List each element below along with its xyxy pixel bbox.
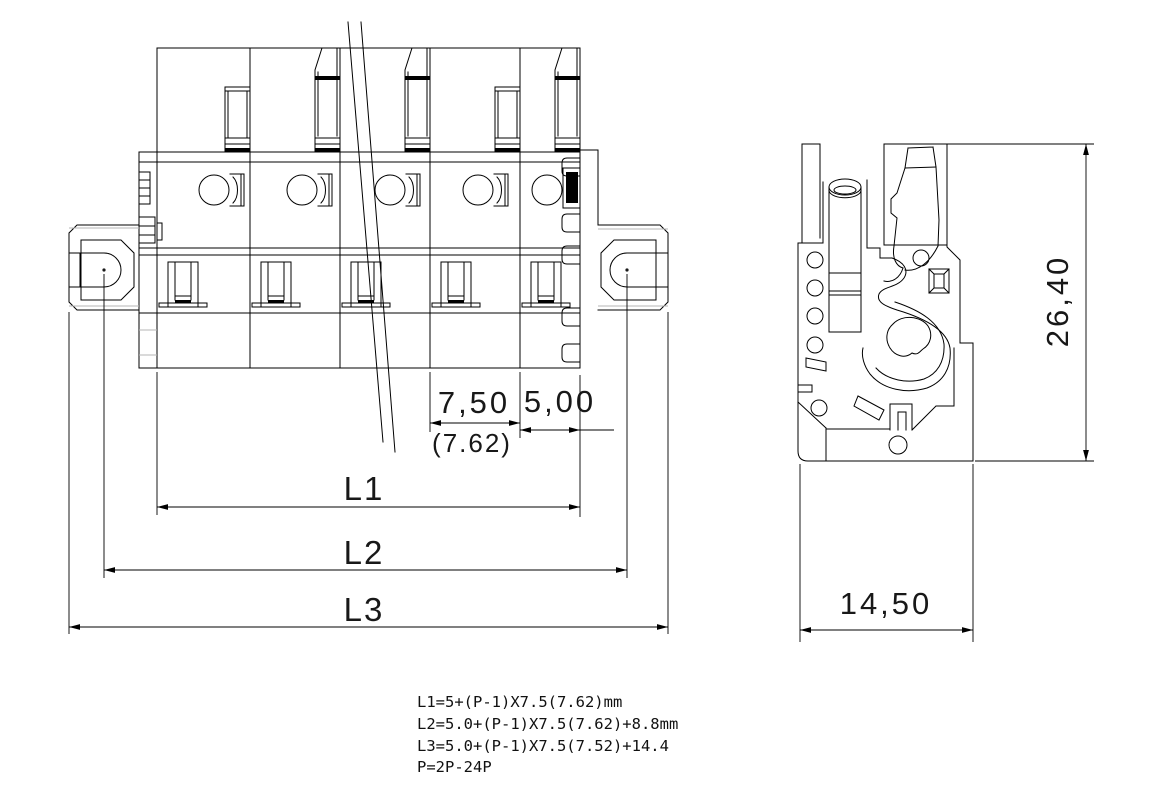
dim-l1: L1 bbox=[157, 470, 580, 510]
mounting-flange-right bbox=[598, 225, 668, 310]
wire-slot-1 bbox=[159, 262, 207, 307]
dim-l3: L3 bbox=[69, 591, 668, 630]
dim-pitch-alt-label: (7.62) bbox=[432, 428, 512, 458]
formula-notes: L1=5+(P-1)X7.5(7.62)mm L2=5.0+(P-1)X7.5(… bbox=[417, 693, 678, 776]
formula-p-range: P=2P-24P bbox=[417, 758, 492, 776]
screw-cavity-2 bbox=[287, 175, 317, 205]
wire-slot-2 bbox=[252, 262, 300, 307]
actuation-lever bbox=[884, 147, 939, 281]
clamp-bracket-4 bbox=[494, 174, 508, 206]
clamp-bracket-1 bbox=[230, 174, 244, 206]
formula-l2: L2=5.0+(P-1)X7.5(7.62)+8.8mm bbox=[417, 715, 678, 733]
formula-l3: L3=5.0+(P-1)X7.5(7.52)+14.4 bbox=[417, 737, 669, 755]
wire-pointer-lines bbox=[348, 22, 395, 452]
screw-cavity-3 bbox=[375, 175, 405, 205]
side-details bbox=[798, 250, 954, 461]
release-lever-2 bbox=[315, 48, 340, 152]
dim-l3-label: L3 bbox=[344, 591, 385, 628]
clamp-spring bbox=[854, 258, 950, 420]
dim-l2-label: L2 bbox=[344, 534, 385, 571]
wire-slot-4 bbox=[432, 262, 480, 307]
drawing-canvas: 7,50 (7.62) 5,00 L1 L2 bbox=[0, 0, 1153, 798]
dim-depth-label: 14,50 bbox=[840, 586, 933, 621]
dim-end-offset-label: 5,00 bbox=[524, 384, 596, 419]
release-lever-1 bbox=[225, 87, 250, 152]
clamp-bracket-3 bbox=[406, 174, 420, 206]
housing-outline bbox=[139, 48, 580, 368]
dim-end-offset: 5,00 bbox=[520, 384, 614, 433]
dimensions: 7,50 (7.62) 5,00 L1 L2 bbox=[69, 144, 1094, 642]
dim-l2: L2 bbox=[104, 534, 627, 573]
end-plate-strip bbox=[139, 172, 162, 355]
dim-depth: 14,50 bbox=[800, 586, 973, 633]
dim-height-label: 26,40 bbox=[1040, 255, 1075, 348]
clamp-bracket-2 bbox=[318, 174, 332, 206]
dim-pitch: 7,50 (7.62) bbox=[430, 385, 520, 458]
wire-slot-5 bbox=[522, 262, 570, 307]
dim-l1-label: L1 bbox=[344, 470, 385, 507]
screw-cavity-4 bbox=[463, 175, 493, 205]
release-lever-4 bbox=[495, 87, 520, 152]
technical-drawing: 7,50 (7.62) 5,00 L1 L2 bbox=[0, 0, 1153, 798]
screw-cavity-1 bbox=[199, 175, 229, 205]
wire-tube bbox=[823, 179, 892, 332]
screw-cavity-5 bbox=[532, 175, 562, 205]
side-view bbox=[798, 144, 973, 461]
dim-pitch-label: 7,50 bbox=[438, 385, 510, 420]
release-lever-5 bbox=[555, 48, 580, 152]
release-lever-3 bbox=[405, 48, 430, 152]
formula-l1: L1=5+(P-1)X7.5(7.62)mm bbox=[417, 693, 622, 711]
dim-height: 26,40 bbox=[1040, 144, 1089, 461]
